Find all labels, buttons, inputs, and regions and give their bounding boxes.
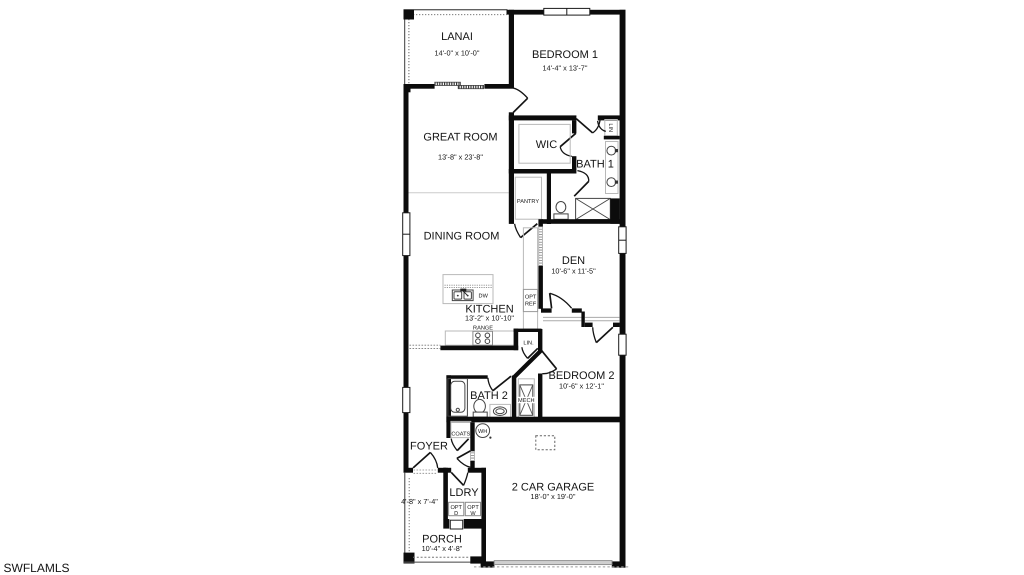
svg-text:REF: REF (525, 301, 537, 307)
svg-text:10'-4" x 4'-8": 10'-4" x 4'-8" (422, 544, 463, 553)
svg-text:13'-2" x 10'-10": 13'-2" x 10'-10" (465, 313, 514, 322)
svg-text:14'-4" x 13'-7": 14'-4" x 13'-7" (543, 64, 588, 73)
svg-text:14'-0" x 10'-0": 14'-0" x 10'-0" (435, 49, 480, 58)
svg-text:BEDROOM 1: BEDROOM 1 (532, 49, 598, 61)
svg-text:FOYER: FOYER (410, 440, 448, 452)
svg-text:OPT: OPT (525, 295, 537, 301)
svg-text:LANAI: LANAI (441, 31, 473, 43)
svg-text:BEDROOM 2: BEDROOM 2 (548, 370, 614, 382)
svg-text:COATS: COATS (451, 431, 470, 437)
svg-text:D: D (454, 511, 458, 517)
svg-text:LDRY: LDRY (449, 487, 479, 499)
svg-text:13'-8" x 23'-8": 13'-8" x 23'-8" (438, 153, 483, 162)
svg-text:18'-0" x 19'-0": 18'-0" x 19'-0" (531, 492, 576, 501)
svg-text:10'-6" x 12'-1": 10'-6" x 12'-1" (559, 381, 604, 390)
svg-text:WH: WH (478, 429, 487, 435)
svg-text:GREAT ROOM: GREAT ROOM (423, 132, 497, 144)
svg-text:LIN.: LIN. (523, 341, 534, 347)
svg-text:BATH 2: BATH 2 (470, 390, 508, 402)
svg-text:DW: DW (479, 294, 489, 300)
svg-text:4'-8" x 7'-4": 4'-8" x 7'-4" (401, 497, 438, 506)
svg-text:W: W (470, 511, 476, 517)
svg-text:PANTRY: PANTRY (517, 199, 539, 205)
svg-text:10'-6" x 11'-5": 10'-6" x 11'-5" (551, 267, 596, 276)
svg-text:WIC: WIC (536, 139, 557, 151)
svg-text:LIN: LIN (607, 123, 613, 132)
svg-text:DINING ROOM: DINING ROOM (424, 231, 500, 243)
svg-text:SWFLAMLS: SWFLAMLS (4, 561, 70, 575)
svg-text:DEN: DEN (562, 255, 585, 267)
svg-text:MECH: MECH (518, 398, 534, 404)
svg-text:BATH 1: BATH 1 (576, 159, 614, 171)
